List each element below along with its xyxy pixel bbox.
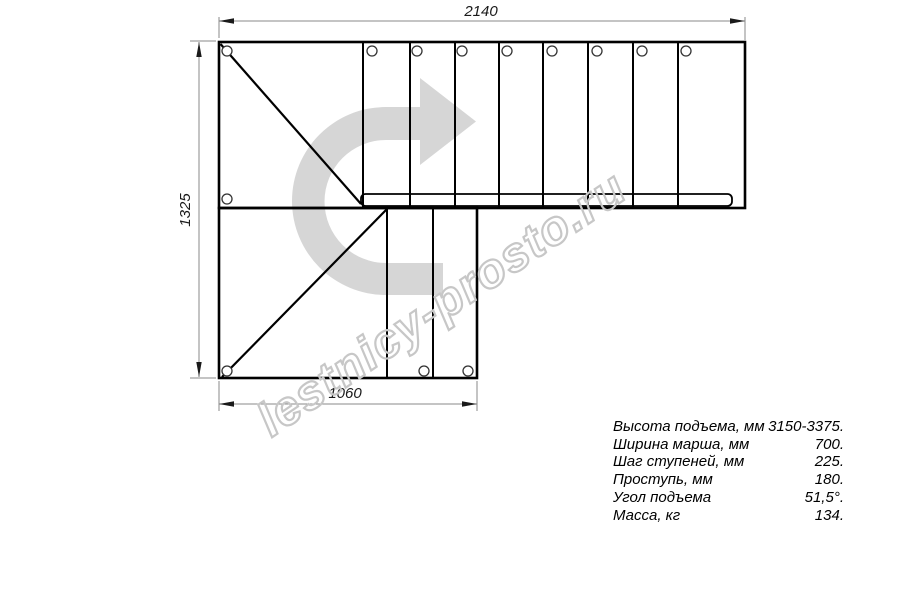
dimension-bottom-label: 1060 xyxy=(328,385,362,402)
spec-value: 700. xyxy=(815,436,844,454)
spec-label: Угол подъема xyxy=(613,489,711,507)
dimension-lines xyxy=(190,17,745,411)
dimension-left-label: 1325 xyxy=(177,193,194,227)
dimension-arrowheads xyxy=(196,18,745,406)
spec-value: 180. xyxy=(815,471,844,489)
spec-label: Проступь, мм xyxy=(613,471,713,489)
dimension-top-lines xyxy=(219,17,745,40)
spec-table: Высота подъема, мм 3150-3375. Ширина мар… xyxy=(613,418,844,524)
spec-value: 3150-3375. xyxy=(768,418,844,436)
spec-label: Высота подъема, мм xyxy=(613,418,765,436)
spec-value: 134. xyxy=(815,507,844,525)
spec-row-tread-depth: Проступь, мм 180. xyxy=(613,471,844,489)
spec-label: Шаг ступеней, мм xyxy=(613,453,744,471)
spec-label: Масса, кг xyxy=(613,507,680,525)
dimension-top-label: 2140 xyxy=(463,3,498,20)
spec-row-height: Высота подъема, мм 3150-3375. xyxy=(613,418,844,436)
spec-row-angle: Угол подъема 51,5°. xyxy=(613,489,844,507)
spec-row-flight-width: Ширина марша, мм 700. xyxy=(613,436,844,454)
spec-value: 225. xyxy=(815,453,844,471)
spec-row-step-pitch: Шаг ступеней, мм 225. xyxy=(613,453,844,471)
spec-row-mass: Масса, кг 134. xyxy=(613,507,844,525)
mounting-holes xyxy=(222,46,691,376)
spec-value: 51,5°. xyxy=(805,489,844,507)
stringer-strip xyxy=(361,194,732,206)
staircase-plan-page: 2140 1325 1060 xyxy=(0,0,900,600)
direction-arrow-icon xyxy=(292,78,476,295)
spec-label: Ширина марша, мм xyxy=(613,436,749,454)
tread-lines-top-flight xyxy=(363,42,678,208)
